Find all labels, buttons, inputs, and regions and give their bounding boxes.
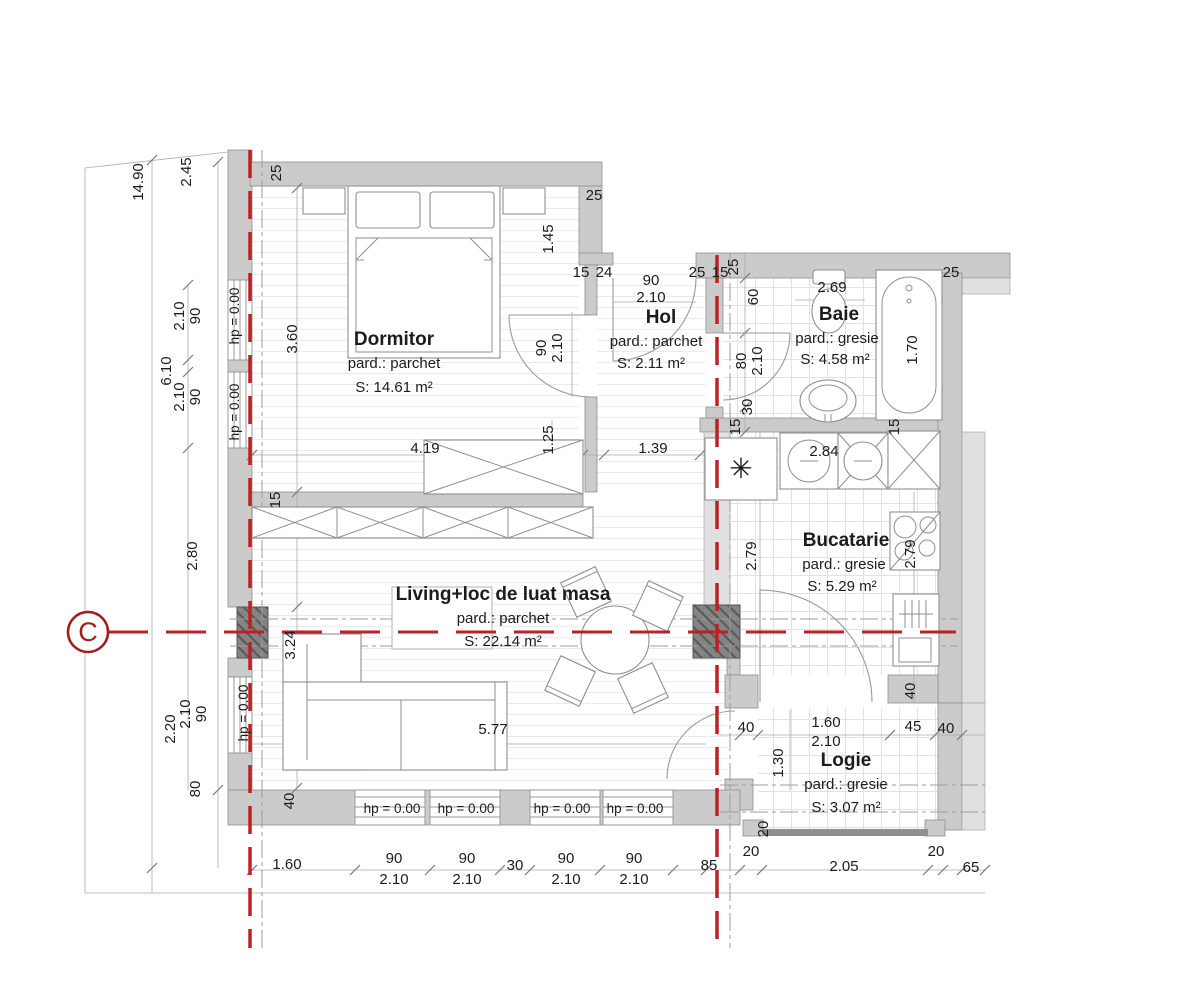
dimension-label: 6.10 (158, 356, 175, 385)
room-floor: pard.: gresie (795, 330, 878, 347)
dimension-label: 2.10 (619, 871, 648, 888)
floor-plan-page: ✳ (0, 0, 1200, 1000)
dimension-label: 4.19 (410, 440, 439, 457)
nightstand (303, 188, 345, 214)
room-name: Baie (819, 304, 859, 325)
dimension-label: hp = 0.00 (607, 801, 664, 816)
wardrobe (424, 440, 583, 494)
room-name: Logie (821, 750, 872, 771)
dimension-label: 24 (596, 264, 613, 281)
dimension-label: 5.77 (478, 721, 507, 738)
wall (425, 790, 430, 825)
dimension-label: hp = 0.00 (438, 801, 495, 816)
dimension-label: 2.69 (817, 279, 846, 296)
dimension-label: 2.10 (636, 289, 665, 306)
dimension-label: 40 (738, 719, 755, 736)
dimension-label: 2.10 (452, 871, 481, 888)
balcony-balustrade (762, 829, 928, 836)
floor-plan-drawing: ✳ (0, 0, 1200, 1000)
dimension-label: 1.39 (638, 440, 667, 457)
dimension-label: 20 (928, 843, 945, 860)
dimension-label: 1.60 (272, 856, 301, 873)
room-name: Living+loc de luat masa (396, 584, 611, 605)
wall (727, 658, 740, 675)
nightstand (503, 188, 545, 214)
dimension-label: hp = 0.00 (227, 288, 242, 345)
dimension-label: 25 (689, 264, 706, 281)
dimension-label: hp = 0.00 (534, 801, 591, 816)
room-name: Hol (646, 307, 677, 328)
dimension-label: 2.10 (811, 733, 840, 750)
dimension-label: 2.45 (178, 157, 195, 186)
dimension-label: 1.25 (540, 425, 557, 454)
dimension-label: 90 (193, 706, 210, 723)
dimension-label: 80 (187, 781, 204, 798)
dimension-label: 85 (701, 857, 718, 874)
dimension-label: 2.20 (162, 714, 179, 743)
dimension-label: 25 (268, 165, 285, 182)
dimension-label: 20 (743, 843, 760, 860)
dimension-label: 2.10 (749, 346, 766, 375)
dimension-label: 90 (558, 850, 575, 867)
room-name: Dormitor (354, 329, 435, 350)
dimension-label: 3.24 (282, 630, 299, 659)
dimension-label: 90 (643, 272, 660, 289)
dimension-label: 2.10 (551, 871, 580, 888)
room-floor: pard.: gresie (802, 556, 885, 573)
washing-machine (780, 433, 838, 489)
dimension-label: 90 (187, 308, 204, 325)
wall (585, 397, 597, 492)
dimension-label: 2.10 (549, 333, 566, 362)
corner-cabinet (888, 431, 940, 489)
dimension-label: 2.10 (379, 871, 408, 888)
wall (962, 278, 1010, 294)
dimension-label: 90 (626, 850, 643, 867)
room-floor: pard.: parchet (610, 333, 703, 350)
washing-machine (838, 433, 888, 489)
kitchen-sink (893, 594, 939, 666)
dimension-label: 15 (573, 264, 590, 281)
dimension-label: 1.45 (540, 224, 557, 253)
room-area: S: 4.58 m² (800, 351, 869, 368)
dimension-label: 2.79 (902, 539, 919, 568)
dimension-label: 25 (586, 187, 603, 204)
wall (500, 790, 530, 825)
dimension-label: 90 (533, 340, 550, 357)
dimension-label: 30 (507, 857, 524, 874)
dimension-label: 2.10 (177, 699, 194, 728)
dimension-label: 2.05 (829, 858, 858, 875)
wardrobe (252, 507, 593, 538)
wall (696, 253, 1010, 278)
wall (250, 162, 602, 186)
dimension-label: 65 (963, 859, 980, 876)
dimension-label: 1.30 (770, 748, 787, 777)
dimension-label: 25 (725, 259, 742, 276)
dimension-label: 2.10 (171, 382, 188, 411)
room-area: S: 5.29 m² (807, 578, 876, 595)
room-label-dormitor: Dormitor pard.: parchet S: 14.61 m² (348, 329, 441, 396)
room-floor: pard.: parchet (457, 610, 550, 627)
section-marker-c: C (68, 612, 108, 652)
dimension-label: 25 (943, 264, 960, 281)
dimension-label: 1.70 (904, 335, 921, 364)
snowflake-icon: ✳ (729, 453, 752, 484)
wall (706, 278, 723, 333)
room-area: S: 14.61 m² (355, 379, 433, 396)
room-area: S: 3.07 m² (811, 799, 880, 816)
dimension-label: 15 (267, 492, 284, 509)
dimension-label: 40 (902, 683, 919, 700)
dimension-label: hp = 0.00 (227, 384, 242, 441)
dimension-label: 45 (905, 718, 922, 735)
dimension-label: 40 (938, 720, 955, 737)
dimension-label: 60 (745, 289, 762, 306)
dimension-label: 2.79 (743, 541, 760, 570)
room-area: S: 22.14 m² (464, 633, 542, 650)
dimension-label: hp = 0.00 (236, 685, 251, 742)
dimension-label: hp = 0.00 (364, 801, 421, 816)
dimension-label: 30 (739, 399, 756, 416)
room-area: S: 2.11 m² (617, 355, 685, 372)
room-label-bucatarie: Bucatarie pard.: gresie S: 5.29 m² (802, 530, 889, 595)
dimension-label: 20 (755, 821, 772, 838)
room-floor: pard.: gresie (804, 776, 887, 793)
section-marker-label: C (78, 617, 98, 647)
wall (962, 703, 985, 830)
wall (962, 432, 985, 703)
dimension-label: 1.60 (811, 714, 840, 731)
dimension-label: 80 (733, 353, 750, 370)
dimension-label: 2.80 (184, 541, 201, 570)
dimension-label: 2.84 (809, 443, 838, 460)
room-floor: pard.: parchet (348, 355, 441, 372)
bathroom-sink (800, 380, 856, 422)
dimension-label: 15 (886, 419, 903, 436)
dimension-label: 40 (281, 793, 298, 810)
dimension-label: 90 (386, 850, 403, 867)
dimension-label: 90 (459, 850, 476, 867)
dimension-label: 90 (187, 389, 204, 406)
dimension-label: 15 (727, 419, 744, 436)
dimension-label: 14.90 (130, 163, 147, 201)
dimension-label: 2.10 (171, 301, 188, 330)
room-name: Bucatarie (803, 530, 890, 551)
dimension-label: 3.60 (284, 324, 301, 353)
